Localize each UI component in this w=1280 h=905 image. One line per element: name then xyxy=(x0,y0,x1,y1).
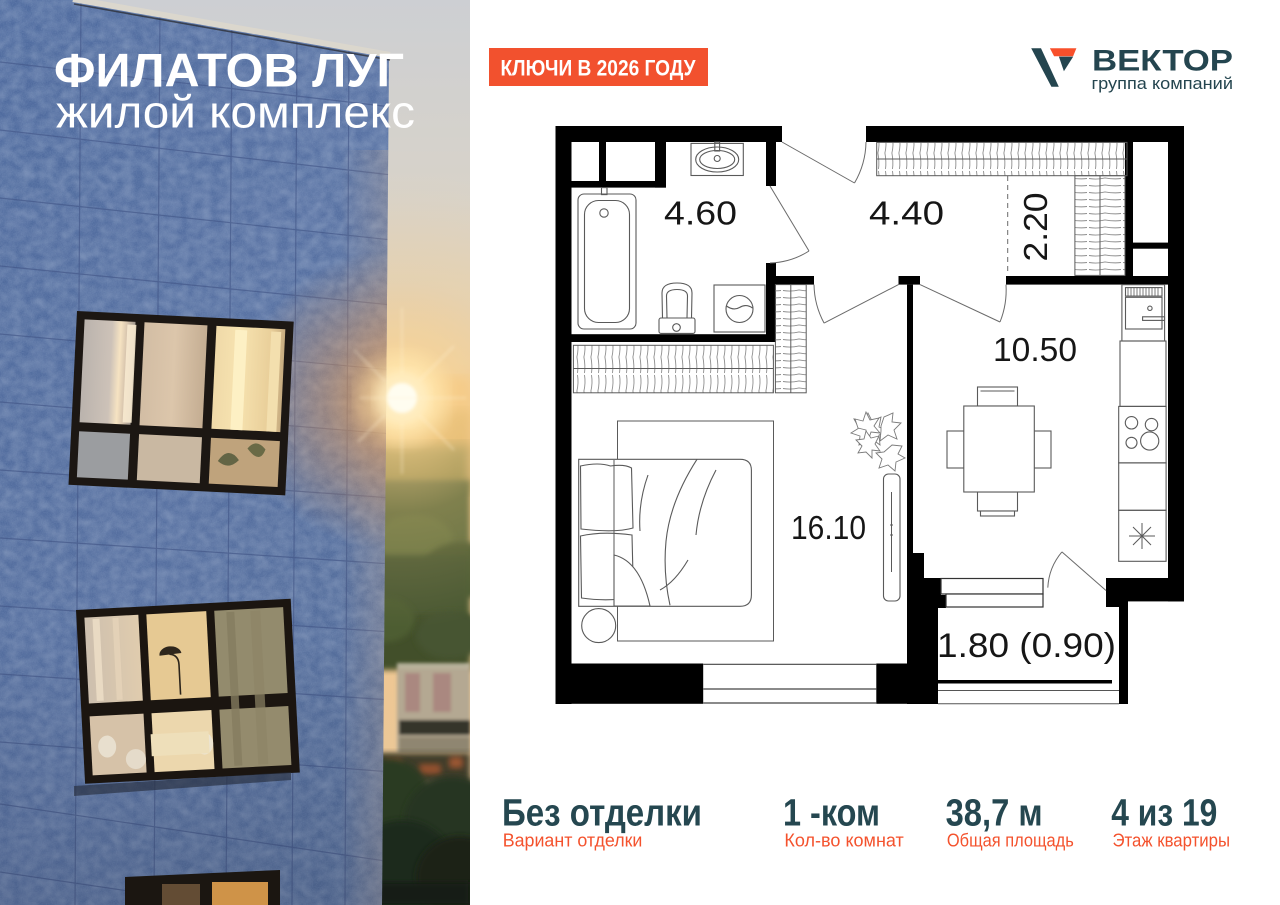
svg-text:38,7 м: 38,7 м xyxy=(946,793,1043,835)
svg-text:4 из 19: 4 из 19 xyxy=(1111,793,1217,835)
svg-text:ВЕКТОР: ВЕКТОР xyxy=(1092,45,1233,78)
svg-text:Этаж квартиры: Этаж квартиры xyxy=(1113,831,1231,851)
svg-text:Вариант отделки: Вариант отделки xyxy=(503,831,643,851)
svg-text:Без отделки: Без отделки xyxy=(502,793,702,835)
svg-text:1 -ком: 1 -ком xyxy=(783,793,880,835)
svg-text:Кол-во комнат: Кол-во комнат xyxy=(784,831,903,851)
svg-text:КЛЮЧИ В 2026 ГОДУ: КЛЮЧИ В 2026 ГОДУ xyxy=(501,56,696,81)
svg-text:жилой комплекс: жилой комплекс xyxy=(56,87,415,138)
svg-text:группа компаний: группа компаний xyxy=(1092,74,1234,93)
svg-text:Общая площадь: Общая площадь xyxy=(947,831,1074,851)
